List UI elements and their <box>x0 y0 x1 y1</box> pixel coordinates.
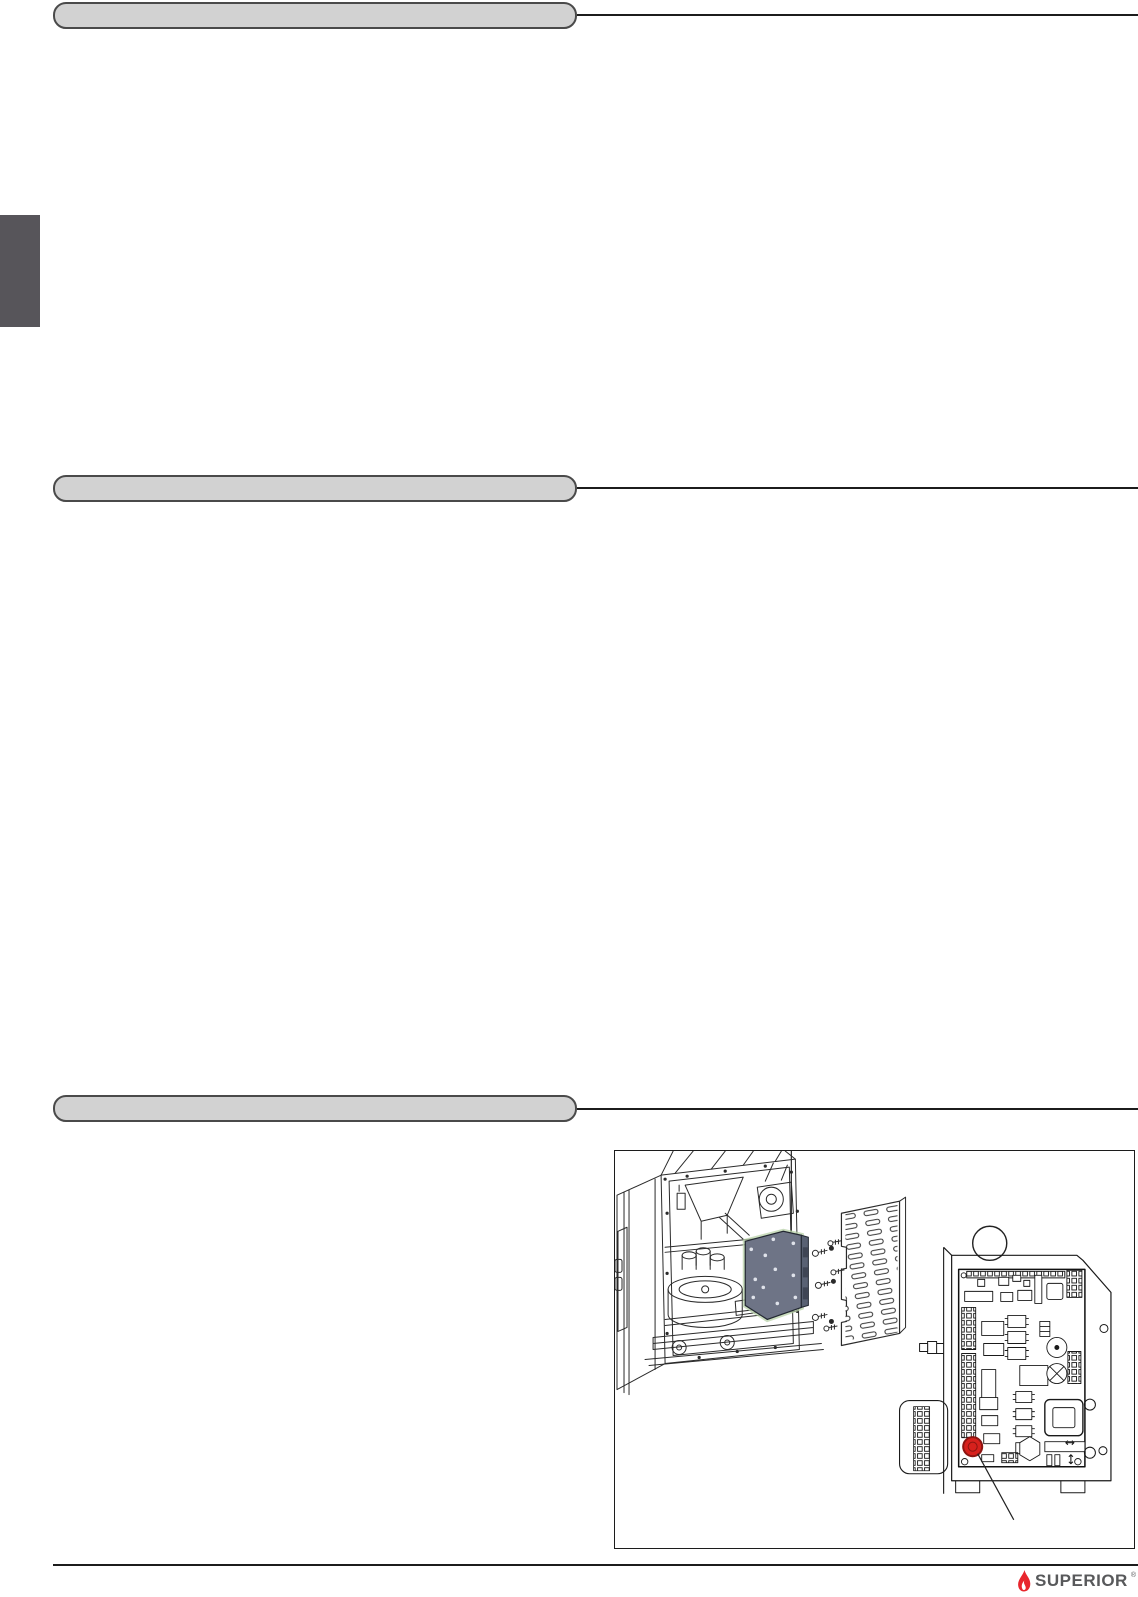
section-header-3 <box>0 1095 1138 1125</box>
figure-svg <box>615 1151 1134 1548</box>
board-plate-in-stove <box>745 1231 835 1323</box>
section-header-2 <box>0 475 1138 505</box>
perforated-cover-drawing <box>824 1197 906 1345</box>
control-board-drawing <box>900 1226 1111 1520</box>
section-header-pill <box>53 475 577 502</box>
flame-icon <box>1017 1570 1032 1592</box>
figure-frame <box>614 1150 1135 1549</box>
section-header-pill <box>53 2 577 29</box>
trademark-mark: ® <box>1131 1572 1136 1579</box>
reset-button-indicator <box>963 1437 982 1456</box>
language-side-tab <box>0 215 40 327</box>
section-header-rule <box>577 14 1138 16</box>
section-header-pill <box>53 1095 577 1122</box>
section-header-1 <box>0 2 1138 32</box>
brand-logo: SUPERIOR ® <box>1017 1570 1136 1592</box>
footer-rule <box>53 1564 1138 1566</box>
brand-name: SUPERIOR <box>1035 1570 1128 1592</box>
section-header-rule <box>577 487 1138 489</box>
manual-page: SUPERIOR ® <box>0 0 1138 1597</box>
section-header-rule <box>577 1108 1138 1110</box>
